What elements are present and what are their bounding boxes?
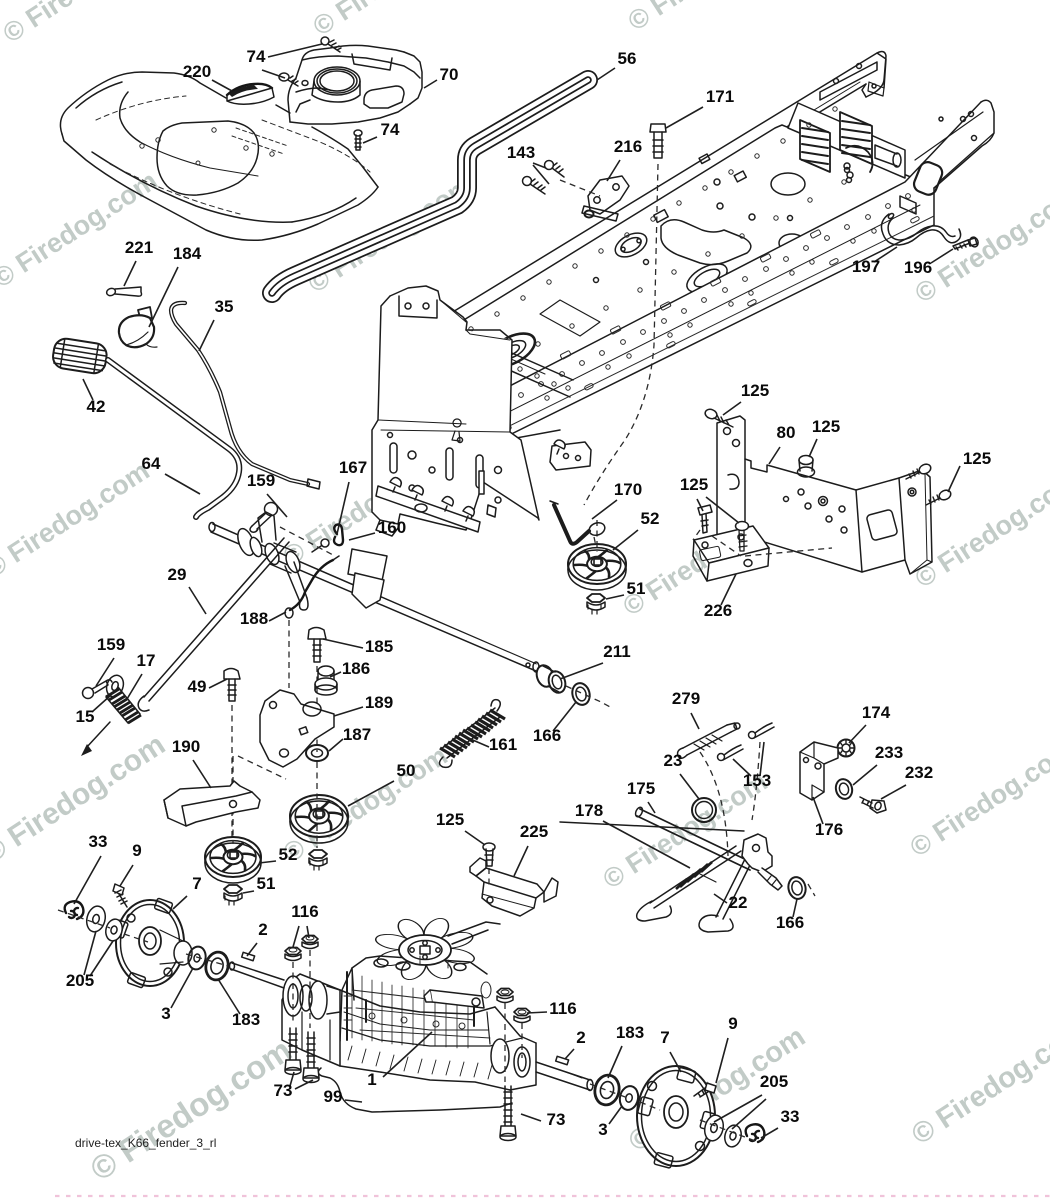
svg-text:23: 23 [664,751,683,770]
svg-text:225: 225 [520,822,548,841]
svg-text:9: 9 [132,841,141,860]
svg-text:74: 74 [247,47,266,66]
svg-text:125: 125 [680,475,708,494]
svg-text:9: 9 [728,1014,737,1033]
svg-text:175: 175 [627,779,655,798]
svg-text:153: 153 [743,771,771,790]
svg-text:190: 190 [172,737,200,756]
svg-text:183: 183 [616,1023,644,1042]
svg-text:7: 7 [192,874,201,893]
svg-text:205: 205 [66,971,94,990]
svg-text:216: 216 [614,137,642,156]
svg-text:2: 2 [258,920,267,939]
svg-text:3: 3 [598,1120,607,1139]
svg-text:143: 143 [507,143,535,162]
svg-text:52: 52 [641,509,660,528]
svg-text:205: 205 [760,1072,788,1091]
svg-text:189: 189 [365,693,393,712]
svg-text:176: 176 [815,820,843,839]
svg-text:73: 73 [274,1081,293,1100]
svg-text:1: 1 [367,1070,376,1089]
svg-text:186: 186 [342,659,370,678]
svg-text:279: 279 [672,689,700,708]
svg-text:70: 70 [440,65,459,84]
svg-text:160: 160 [378,518,406,537]
svg-text:116: 116 [291,902,318,921]
svg-text:drive-tex_K66_fender_3_rl: drive-tex_K66_fender_3_rl [75,1136,216,1150]
svg-text:125: 125 [812,417,840,436]
svg-text:2: 2 [576,1028,585,1047]
svg-text:74: 74 [381,120,400,139]
svg-text:51: 51 [627,579,646,598]
svg-text:3: 3 [161,1004,170,1023]
svg-text:99: 99 [324,1087,343,1106]
svg-text:52: 52 [279,845,298,864]
svg-text:17: 17 [137,651,156,670]
svg-text:80: 80 [777,423,796,442]
svg-text:232: 232 [905,763,933,782]
svg-text:167: 167 [339,458,367,477]
svg-text:125: 125 [741,381,769,400]
svg-text:33: 33 [89,832,108,851]
svg-text:73: 73 [547,1110,566,1129]
svg-text:197: 197 [852,257,880,276]
svg-text:33: 33 [781,1107,800,1126]
svg-text:116: 116 [549,999,576,1018]
svg-text:220: 220 [183,62,211,81]
svg-text:178: 178 [575,801,603,820]
svg-text:211: 211 [603,642,630,661]
svg-text:56: 56 [618,49,637,68]
svg-text:166: 166 [533,726,561,745]
svg-text:166: 166 [776,913,804,932]
svg-text:159: 159 [247,471,275,490]
svg-text:187: 187 [343,725,371,744]
svg-text:184: 184 [173,244,202,263]
svg-text:50: 50 [397,761,416,780]
svg-text:188: 188 [240,609,268,628]
svg-text:170: 170 [614,480,642,499]
svg-text:185: 185 [365,637,393,656]
svg-text:125: 125 [436,810,464,829]
svg-text:125: 125 [963,449,991,468]
svg-text:171: 171 [706,87,734,106]
svg-text:183: 183 [232,1010,260,1029]
svg-text:221: 221 [125,238,153,257]
svg-text:22: 22 [729,893,748,912]
svg-text:233: 233 [875,743,903,762]
svg-text:35: 35 [215,297,234,316]
svg-text:161: 161 [489,735,517,754]
svg-text:51: 51 [257,874,276,893]
svg-text:196: 196 [904,258,932,277]
svg-text:49: 49 [188,677,207,696]
svg-text:7: 7 [660,1028,669,1047]
svg-text:174: 174 [862,703,891,722]
svg-text:42: 42 [87,397,106,416]
svg-text:64: 64 [142,454,161,473]
svg-text:29: 29 [168,565,187,584]
svg-text:226: 226 [704,601,732,620]
svg-text:159: 159 [97,635,125,654]
svg-text:15: 15 [76,707,95,726]
